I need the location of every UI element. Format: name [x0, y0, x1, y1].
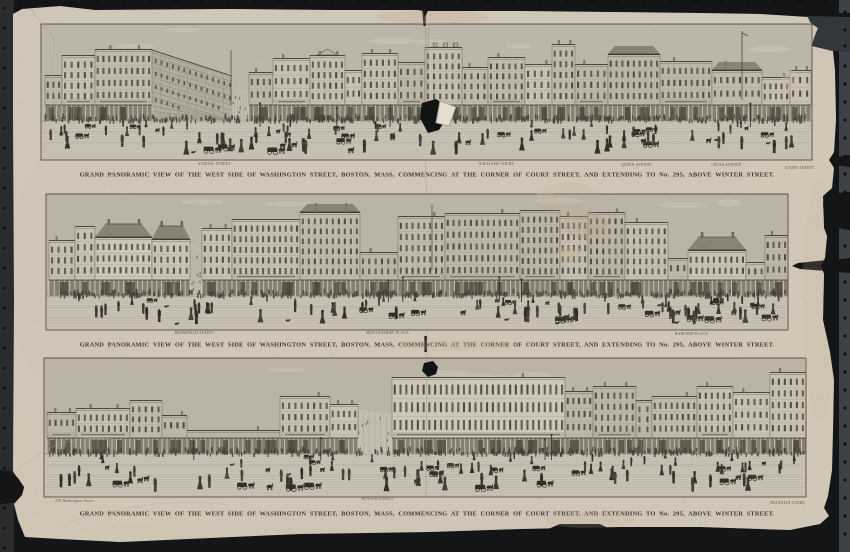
svg-text:MONTGOMERY PLACE.: MONTGOMERY PLACE. — [366, 331, 410, 335]
svg-text:SCHOOL STREET.: SCHOOL STREET. — [198, 162, 231, 166]
svg-text:WILLIAMS COURT.: WILLIAMS COURT. — [479, 162, 515, 166]
svg-text:QUEEN AVENUE.: QUEEN AVENUE. — [621, 163, 653, 167]
svg-text:HARVARD PLACE.: HARVARD PLACE. — [675, 332, 709, 336]
svg-text:GRAND PANORAMIC VIEW OF THE WE: GRAND PANORAMIC VIEW OF THE WEST SIDE OF… — [80, 172, 775, 179]
svg-text:BROMFIELD STREET.: BROMFIELD STREET. — [175, 331, 216, 335]
svg-text:COURT STREET.: COURT STREET. — [785, 166, 816, 170]
svg-text:CROSS AVENUE.: CROSS AVENUE. — [711, 163, 742, 167]
